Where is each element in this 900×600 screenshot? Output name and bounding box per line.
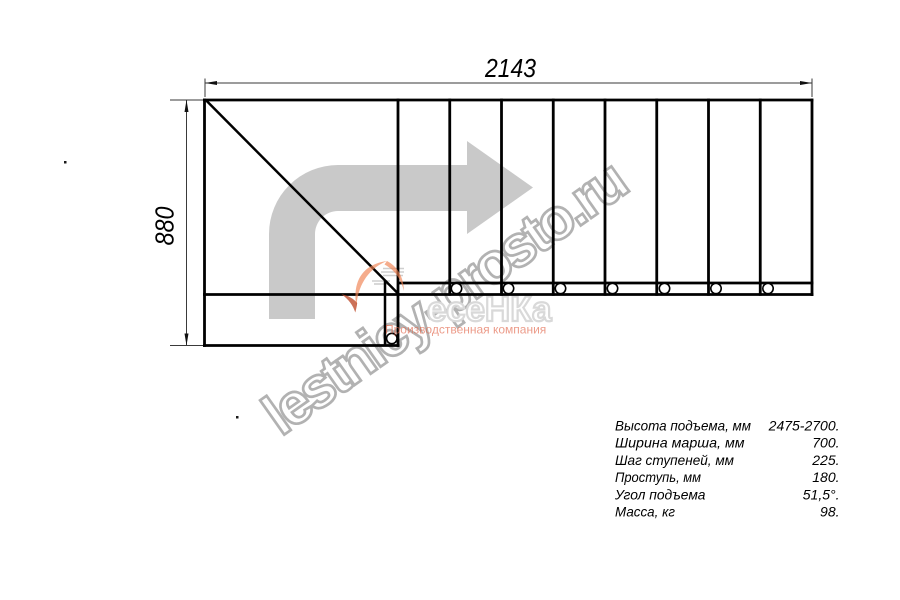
svg-text:Высота подъема, мм: Высота подъема, мм bbox=[615, 418, 751, 434]
svg-text:Масса, кг: Масса, кг bbox=[615, 504, 675, 520]
svg-text:180.: 180. bbox=[812, 469, 839, 485]
svg-text:51,5°.: 51,5°. bbox=[803, 486, 840, 502]
svg-text:880: 880 bbox=[150, 206, 180, 245]
svg-text:Проступь, мм: Проступь, мм bbox=[615, 469, 701, 485]
svg-text:2143: 2143 bbox=[484, 53, 536, 83]
svg-text:2475-2700.: 2475-2700. bbox=[768, 418, 840, 434]
svg-text:Угол подъема: Угол подъема bbox=[614, 486, 706, 502]
svg-text:700.: 700. bbox=[812, 435, 839, 451]
svg-text:98.: 98. bbox=[820, 504, 839, 520]
svg-text:225.: 225. bbox=[811, 452, 839, 468]
svg-text:Производственная компания: Производственная компания bbox=[385, 323, 546, 337]
svg-text:Ширина марша, мм: Ширина марша, мм bbox=[615, 435, 745, 451]
svg-text:Шаг ступеней, мм: Шаг ступеней, мм bbox=[615, 452, 734, 468]
